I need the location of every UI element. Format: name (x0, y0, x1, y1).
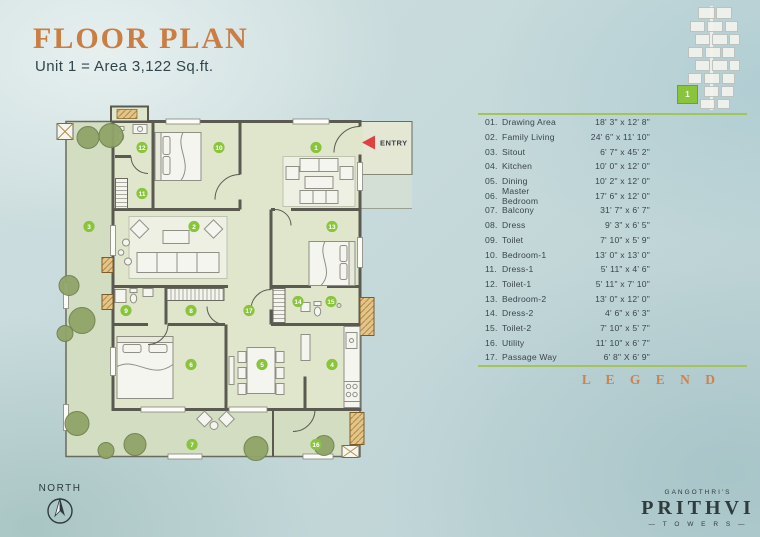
entry-label: ENTRY (380, 139, 408, 148)
svg-text:2: 2 (192, 224, 196, 231)
legend-title: L E G E N D (478, 372, 747, 388)
svg-text:14: 14 (294, 299, 302, 306)
bed-bedroom1 (155, 133, 201, 181)
legend-row: 01.Drawing Area18' 3" x 12' 8" (478, 115, 747, 130)
legend-row: 10.Bedroom-113' 0" x 13' 0" (478, 247, 747, 262)
site-key-block (717, 99, 730, 109)
brand-prefix: GANGOTHRI'S (638, 489, 758, 496)
room-badge-bedroom2: 13 (326, 221, 337, 232)
site-key-unit-highlight: 1 (677, 85, 698, 104)
site-key-block (712, 34, 728, 45)
svg-text:12: 12 (138, 145, 146, 152)
north-indicator: NORTH (30, 483, 90, 532)
svg-text:6: 6 (189, 362, 193, 369)
entry-corridor (360, 122, 412, 209)
site-key-block (712, 60, 728, 71)
svg-text:9: 9 (124, 308, 128, 315)
legend-bottom-rule (478, 365, 747, 367)
legend-row: 15.Toilet-27' 10" x 5' 7" (478, 321, 747, 336)
page-subtitle: Unit 1 = Area 3,122 Sq.ft. (35, 58, 213, 75)
room-badge-master: 6 (185, 359, 196, 370)
legend-row: 04.Kitchen10' 0" x 12' 0" (478, 159, 747, 174)
site-key-block (688, 47, 703, 58)
site-key-block (700, 99, 715, 109)
legend-row: 17.Passage Way6' 8" X 6' 9" (478, 350, 747, 365)
legend-row: 08.Dress9' 3" x 6' 5" (478, 218, 747, 233)
brochure-page: FLOOR PLAN Unit 1 = Area 3,122 Sq.ft. 1 (0, 0, 760, 537)
site-key-block (690, 21, 705, 32)
bed-master (117, 337, 173, 399)
svg-text:10: 10 (215, 145, 223, 152)
legend-row: 03.Sitout6' 7" x 45' 2" (478, 144, 747, 159)
legend-row: 09.Toilet7' 10" x 5' 9" (478, 233, 747, 248)
svg-text:3: 3 (87, 224, 91, 231)
legend-row: 02.Family Living24' 6" x 11' 10" (478, 130, 747, 145)
site-key-block (688, 73, 702, 84)
legend-row: 13.Bedroom-213' 0" x 12' 0" (478, 291, 747, 306)
legend-row: 12.Toilet-15' 11" x 7' 10" (478, 277, 747, 292)
site-key-block (721, 86, 734, 97)
legend-panel: 01.Drawing Area18' 3" x 12' 8" 02.Family… (478, 113, 747, 388)
room-badge-dining: 5 (256, 359, 267, 370)
room-badge-drawing: 1 (310, 142, 321, 153)
room-badge-sitout: 3 (83, 221, 94, 232)
svg-text:17: 17 (245, 308, 253, 315)
site-key-block (725, 21, 738, 32)
site-key-block (704, 73, 720, 84)
sofa-set-family (129, 217, 227, 279)
site-key-block (716, 7, 732, 19)
svg-text:15: 15 (327, 299, 335, 306)
site-key-block (729, 34, 740, 45)
page-title: FLOOR PLAN (33, 22, 249, 56)
site-key-block (722, 47, 735, 58)
north-label: NORTH (30, 483, 90, 494)
sofa-set-drawing (283, 157, 355, 207)
brand-name: PRITHVI (638, 497, 758, 520)
legend-row: 14.Dress-24' 6" x 6' 3" (478, 306, 747, 321)
site-key-block (707, 21, 723, 32)
svg-text:13: 13 (328, 224, 336, 231)
entry-door-gap (357, 127, 363, 155)
site-key-block (704, 86, 719, 97)
room-badge-dress2: 14 (292, 296, 303, 307)
room-badge-toilet1: 12 (136, 142, 147, 153)
svg-text:8: 8 (189, 308, 193, 315)
room-badge-bedroom1: 10 (213, 142, 224, 153)
site-key-block (729, 60, 740, 71)
room-badge-toilet2: 15 (325, 296, 336, 307)
svg-text:7: 7 (190, 442, 194, 449)
svg-text:16: 16 (312, 442, 320, 449)
site-key-block (722, 73, 735, 84)
compass-icon (44, 495, 76, 527)
svg-text:1: 1 (314, 145, 318, 152)
site-key-block (695, 60, 710, 71)
top-shaft (111, 107, 148, 122)
bed-bedroom2 (309, 242, 355, 286)
floor-plan: 1 2 3 4 5 6 7 8 9 10 11 12 13 14 15 16 1… (53, 103, 433, 463)
legend-row: 07.Balcony31' 7" x 6' 7" (478, 203, 747, 218)
room-badge-passage: 17 (243, 305, 254, 316)
room-badge-balcony: 7 (186, 439, 197, 450)
room-badge-family: 2 (188, 221, 199, 232)
svg-text:5: 5 (260, 362, 264, 369)
legend-row: 16.Utility11' 10" x 6' 7" (478, 335, 747, 350)
legend-row: 11.Dress-15' 11" x 4' 6" (478, 262, 747, 277)
site-key-block (705, 47, 721, 58)
room-badge-kitchen: 4 (326, 359, 337, 370)
room-badge-dress: 8 (185, 305, 196, 316)
site-key-block (695, 34, 710, 45)
legend-row: 06.Master Bedroom17' 6" x 12' 0" (478, 188, 747, 203)
room-badge-toilet: 9 (120, 305, 131, 316)
room-badge-dress1: 11 (136, 188, 147, 199)
brand-block: GANGOTHRI'S PRITHVI — T O W E R S — (638, 489, 758, 528)
svg-text:11: 11 (139, 191, 146, 198)
svg-text:4: 4 (330, 362, 334, 369)
brand-suffix: — T O W E R S — (638, 521, 758, 528)
site-key-block (698, 7, 715, 19)
site-key-map: 1 (676, 5, 754, 115)
room-badge-utility: 16 (310, 439, 321, 450)
